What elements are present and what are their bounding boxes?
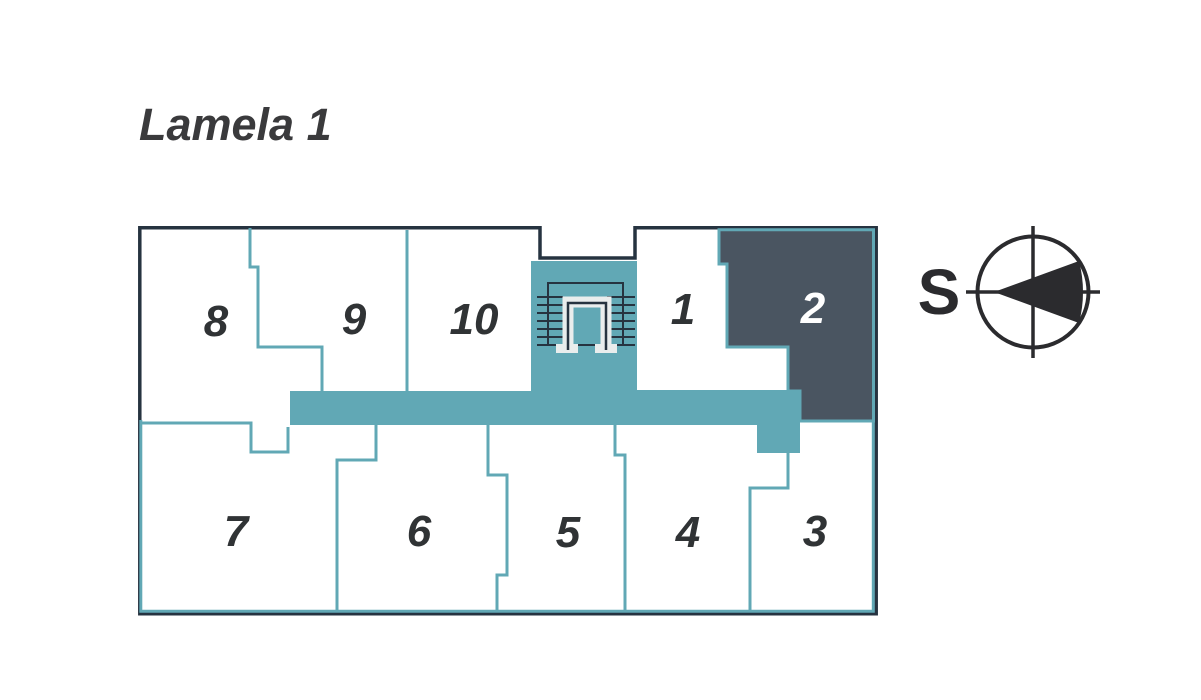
page: Lamela 1 8 9 10 1 2 7 6 5 4 3 (0, 0, 1201, 700)
unit-9-region[interactable] (259, 230, 405, 389)
unit-1-region[interactable] (638, 230, 718, 389)
unit-6-region[interactable] (338, 427, 487, 612)
unit-2-label: 2 (800, 284, 826, 333)
compass: S (918, 226, 1100, 358)
unit-8-region[interactable] (141, 230, 253, 420)
unit-7-region[interactable] (141, 427, 336, 612)
unit-5-region[interactable] (490, 427, 614, 612)
unit-10-region[interactable] (409, 230, 530, 389)
page-title: Lamela 1 (139, 99, 332, 150)
unit-4-region[interactable] (617, 427, 749, 612)
compass-direction-label: S (918, 256, 961, 328)
compass-needle-icon (994, 261, 1083, 323)
unit-3-region[interactable] (751, 455, 873, 611)
